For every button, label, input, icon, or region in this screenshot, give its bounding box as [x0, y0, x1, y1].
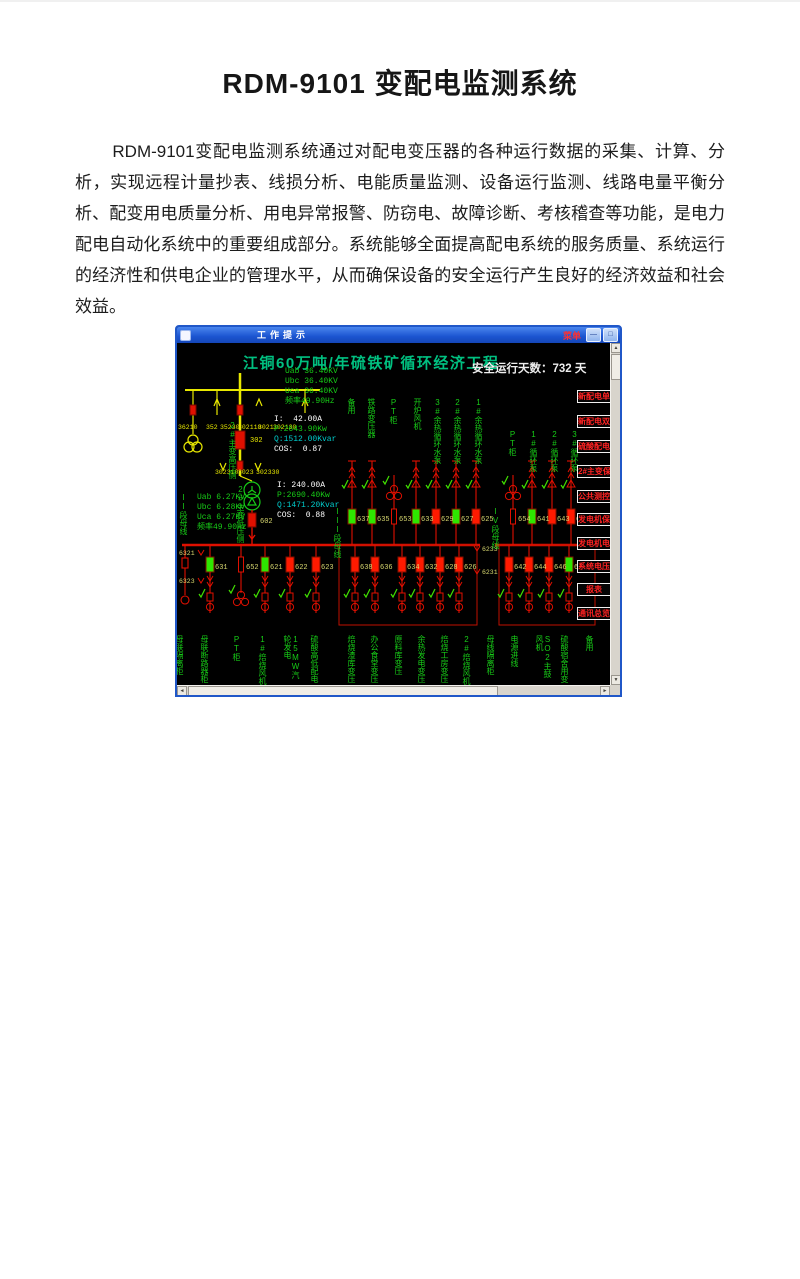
menu-button-系统电压[interactable]: 系统电压 [577, 560, 610, 573]
cabinet-label-备用: 备用 [585, 635, 593, 651]
screen-title: 江铜60万吨/年硫铁矿循环经济工程 [243, 352, 499, 373]
scroll-down-icon[interactable]: ▼ [611, 675, 620, 685]
readout-line: Ubc 36.40KV [285, 377, 338, 387]
breaker-622[interactable] [286, 557, 294, 572]
drawout-icon [399, 593, 405, 601]
breaker-631[interactable] [206, 557, 214, 572]
switch-state-icon [522, 480, 528, 488]
bus3-label: III段母线 [333, 507, 341, 558]
switch-state-icon [409, 589, 415, 597]
breaker-id-633: 633 [421, 516, 434, 524]
hscroll-thumb[interactable] [188, 686, 498, 695]
switch-id-302330: 302330 [256, 469, 280, 476]
titlebar-menu-label[interactable]: 菜单 [563, 329, 581, 342]
breaker-id-628: 628 [445, 564, 458, 572]
hv-measurement-block: I: 42.00AP:2643.90KwQ:1512.00KvarCOS: 0.… [274, 415, 336, 455]
pt-transformer-icon [394, 492, 401, 499]
document-paragraph: RDM-9101变配电监测系统通过对配电变压器的各种运行数据的采集、计算、分析，… [75, 136, 725, 322]
switch-state-icon [426, 480, 432, 488]
drawout-icon [287, 593, 293, 601]
lv-measurement-block: I: 240.00AP:2690.40KwQ:1471.20KvarCOS: 0… [277, 481, 339, 521]
switch-id-3021: 3021 [258, 424, 274, 431]
breaker-654[interactable] [511, 509, 516, 524]
breaker-id-644: 644 [534, 564, 547, 572]
breaker-621[interactable] [261, 557, 269, 572]
document-title: RDM-9101 变配电监测系统 [0, 62, 800, 102]
maximize-button[interactable]: □ [603, 328, 618, 342]
breaker-642[interactable] [505, 557, 513, 572]
breaker-id-654: 654 [518, 516, 531, 524]
safe-days-unit: 天 [575, 363, 587, 375]
minimize-button[interactable]: — [586, 328, 601, 342]
cabinet-label-15MW汽轮发电: 15MW汽轮发电 [283, 635, 299, 685]
readout-line: Q:1512.00Kvar [274, 435, 336, 445]
drawout-icon [372, 593, 378, 601]
drawout-icon [526, 593, 532, 601]
switch-state-icon [558, 589, 564, 597]
cabinet-label-SO2主鼓风机: SO2主鼓风机 [535, 635, 551, 685]
readout-line: Uca 36.40KV [285, 387, 338, 397]
drawout-icon [207, 593, 213, 601]
feeder-label-1#余热循环水泵: 1#余热循环水泵 [474, 398, 482, 464]
breaker-638[interactable] [351, 557, 359, 572]
feeder-label-备用: 备用 [347, 398, 355, 414]
breaker-id-623: 623 [321, 564, 334, 572]
safe-days: 安全运行天数：732 天 [472, 360, 586, 376]
breaker-637[interactable] [348, 509, 356, 524]
feeder-label-2#循环泵: 2#循环泵 [550, 430, 558, 472]
cabinet-label-焙烧渣库变压: 焙烧渣库变压 [347, 635, 355, 683]
drawout-icon [456, 593, 462, 601]
switch-state-icon [342, 480, 348, 488]
cabinet-label-焙烧工房变压: 焙烧工房变压 [440, 635, 448, 683]
cabinet-label-母线隔离柜: 母线隔离柜 [486, 635, 494, 675]
horizontal-scrollbar[interactable]: ◄ ► [177, 685, 610, 695]
readout-line: Uab 36.40KV [285, 367, 338, 377]
pt-transformer-icon [513, 492, 520, 499]
switch-state-icon [446, 480, 452, 488]
breaker-id-642: 642 [514, 564, 527, 572]
pt-transformer-icon [241, 598, 248, 605]
readout-line: P:2643.90Kw [274, 425, 336, 435]
readout-line: P:2690.40Kw [277, 491, 339, 501]
window-client-area: 6376356536336296276256546416436456316526… [177, 343, 620, 695]
scroll-right-icon[interactable]: ► [600, 686, 610, 695]
breaker-id-652: 652 [246, 564, 259, 572]
switch-state-icon [364, 589, 370, 597]
breaker-id-637: 637 [357, 516, 370, 524]
hv-voltage-block: Uab 36.40KVUbc 36.40KVUca 36.40KV频率49.90… [285, 367, 338, 407]
cabinet-label-办公食堂变压: 办公食堂变压 [370, 635, 378, 683]
switch-state-icon [538, 589, 544, 597]
scada-window: 工作提示 菜单 — □ [175, 325, 622, 697]
drawout-icon [417, 593, 423, 601]
breaker-id-638: 638 [360, 564, 373, 572]
feeder-label-1#循环泵: 1#循环泵 [529, 430, 537, 472]
menu-button-公共测控[interactable]: 公共测控 [577, 490, 610, 503]
window-titlebar[interactable]: 工作提示 菜单 — □ [177, 327, 620, 343]
switch-state-icon [542, 480, 548, 488]
feeder-label-开炉风机: 开炉风机 [413, 398, 421, 430]
breaker-id-646: 646 [554, 564, 567, 572]
window-title: 工作提示 [257, 328, 309, 341]
feeder-label-PT柜: PT柜 [508, 430, 516, 456]
breaker-id-636: 636 [380, 564, 393, 572]
breaker-633[interactable] [412, 509, 420, 524]
drawout-icon [546, 593, 552, 601]
switch-state-icon [305, 589, 311, 597]
bus-tag-6323: 6323 [179, 578, 195, 585]
vertical-scrollbar[interactable]: ▲ ▼ [610, 343, 620, 685]
breaker-id-634: 634 [407, 564, 420, 572]
arrow-icon [198, 578, 204, 583]
breaker-id-635: 635 [377, 516, 390, 524]
feeder-label-PT柜: PT柜 [389, 398, 397, 424]
lv-side-label: 2#主变低压侧 [236, 485, 244, 543]
feeder-label-2#余热循环水泵: 2#余热循环水泵 [453, 398, 461, 464]
readout-line: 频率49.90Hz [285, 397, 338, 407]
vscroll-thumb[interactable] [611, 354, 620, 380]
breaker-id-653: 653 [399, 516, 412, 524]
menu-button-发电机电压[interactable]: 发电机电压 [577, 537, 610, 550]
safe-days-value: 732 [553, 363, 572, 375]
hv-side-label: 2#主变高压侧 [228, 421, 236, 479]
breaker-id-641: 641 [537, 516, 550, 524]
switch-id-352: 352 [206, 424, 218, 431]
bus-tag-6321: 6321 [179, 550, 195, 557]
readout-line: I: 240.00A [277, 481, 339, 491]
switch-state-icon [561, 480, 567, 488]
pt-transformer-icon [233, 598, 240, 605]
pt-transformer-icon [386, 492, 393, 499]
menu-button-新配电单屏[interactable]: 新配电单屏 [577, 390, 610, 403]
cabinet-label-1#焙烧风机: 1#焙烧风机 [258, 635, 266, 685]
scrollbar-corner [610, 685, 620, 695]
scroll-up-icon[interactable]: ▲ [611, 343, 620, 353]
cabinet-label-母联断路器柜: 母联断路器柜 [200, 635, 208, 683]
switch-state-icon [429, 589, 435, 597]
cabinet-label-原料库变压: 原料库变压 [394, 635, 402, 675]
switch-state-icon [391, 589, 397, 597]
switch-state-icon [383, 476, 389, 484]
breaker-id-622: 622 [295, 564, 308, 572]
readout-line: I: 42.00A [274, 415, 336, 425]
menu-button-新配电双屏[interactable]: 新配电双屏 [577, 415, 610, 428]
breaker-id-626: 626 [464, 564, 477, 572]
feeder-label-铁路变压器: 铁路变压器 [367, 398, 375, 438]
readout-line: COS: 0.87 [274, 445, 336, 455]
breaker-id-643: 643 [557, 516, 570, 524]
menu-button-报表[interactable]: 报表 [577, 583, 610, 596]
breaker-id-629: 629 [441, 516, 454, 524]
feeder-label-3#余热循环水泵: 3#余热循环水泵 [433, 398, 441, 464]
bus-tag-6231: 6231 [482, 569, 498, 576]
cabinet-label-硫酸高低配电: 硫酸高低配电 [310, 635, 318, 683]
breaker-id-621: 621 [270, 564, 283, 572]
switch-state-icon [254, 589, 260, 597]
menu-button-发电机保护[interactable]: 发电机保护 [577, 513, 610, 526]
switch-state-icon [466, 480, 472, 488]
breaker-623[interactable] [312, 557, 320, 572]
window-icon [180, 330, 191, 341]
readout-line: COS: 0.88 [277, 511, 339, 521]
readout-line: Q:1471.20Kvar [277, 501, 339, 511]
bus4-label: IV段母线 [491, 507, 499, 549]
breaker-id-632: 632 [425, 564, 438, 572]
cabinet-label-余热发电变压: 余热发电变压 [417, 635, 425, 683]
cabinet-label-电源进线: 电源进线 [510, 635, 518, 667]
menu-button-通讯总览[interactable]: 通讯总览 [577, 607, 610, 620]
switch-state-icon [229, 585, 235, 593]
switch-state-icon [518, 589, 524, 597]
breaker-id-631: 631 [215, 564, 228, 572]
switch-id-36210: 36210 [178, 424, 198, 431]
switch-id-3023: 3023 [238, 469, 254, 476]
drawout-icon [313, 593, 319, 601]
page-border [0, 0, 800, 2]
breaker-652[interactable] [239, 557, 244, 572]
breaker-602[interactable] [248, 513, 256, 527]
breaker-id-302: 302 [250, 437, 263, 445]
scada-canvas: 6376356536336296276256546416436456316526… [177, 343, 610, 685]
drawout-icon [566, 593, 572, 601]
switch-state-icon [406, 480, 412, 488]
pt-transformer-icon [505, 492, 512, 499]
drawout-icon [262, 593, 268, 601]
switch-state-icon [502, 476, 508, 484]
menu-button-2#主变保护[interactable]: 2#主变保护 [577, 465, 610, 478]
cabinet-label-母联隔离柜: 母联隔离柜 [177, 635, 183, 675]
cabinet-label-硫酸宿舍用变: 硫酸宿舍用变 [560, 635, 568, 683]
menu-button-硫酸配电[interactable]: 硫酸配电 [577, 440, 610, 453]
drawout-icon [352, 593, 358, 601]
switch-state-icon [199, 589, 205, 597]
cabinet-label-PT柜: PT柜 [232, 635, 240, 661]
bus2-label: II段母线 [179, 493, 187, 535]
breaker-653[interactable] [392, 509, 397, 524]
cabinet-label-2#焙烧风机: 2#焙烧风机 [462, 635, 470, 685]
breaker-634[interactable] [398, 557, 406, 572]
drawout-icon [506, 593, 512, 601]
safe-days-label: 安全运行天数： [472, 363, 553, 375]
switch-state-icon [448, 589, 454, 597]
arrow-icon [198, 550, 204, 555]
breaker-id-602: 602 [260, 518, 273, 526]
switch-state-icon [362, 480, 368, 488]
drawout-icon [437, 593, 443, 601]
switch-state-icon [279, 589, 285, 597]
breaker-id-627: 627 [461, 516, 474, 524]
scroll-left-icon[interactable]: ◄ [177, 686, 187, 695]
switch-state-icon [344, 589, 350, 597]
